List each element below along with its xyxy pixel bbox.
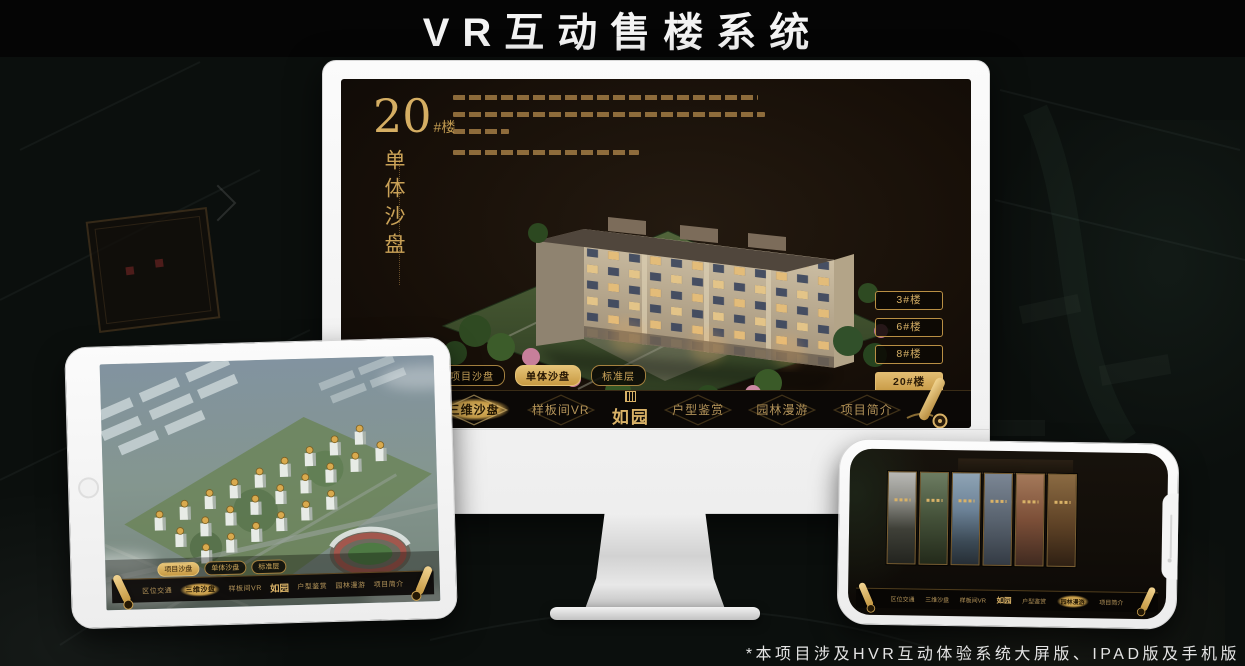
scene-card-label [1022, 500, 1038, 503]
phone-nav-garden-tour[interactable]: 园林漫游 [1057, 595, 1089, 609]
phone-brand-name: 如园 [996, 595, 1011, 606]
phone-nav-3d-sandbox[interactable]: 三维沙盘 [925, 595, 949, 604]
phone-notch [1161, 493, 1178, 579]
tablet-subtab-project-sandbox[interactable]: 项目沙盘 [157, 562, 199, 577]
tablet-nav-garden-tour[interactable]: 园林漫游 [335, 580, 365, 591]
phone-nav-project-intro[interactable]: 项目简介 [1099, 597, 1123, 606]
building-button-6[interactable]: 6#楼 [875, 318, 943, 337]
phone-nav-showroom-vr[interactable]: 样板间VR [960, 595, 986, 604]
nav-item-project-intro[interactable]: 项目简介 [831, 398, 903, 421]
tablet-nav-floorplans[interactable]: 户型鉴赏 [297, 581, 327, 592]
scene-card-label [958, 499, 974, 502]
phone-device: 区位交通 三维沙盘 样板间VR 如园 户型鉴赏 园林漫游 项目简介 [837, 438, 1180, 629]
page-title: VR互动售楼系统 [423, 0, 823, 58]
poster-stage: VR互动售楼系统 20#楼 单体沙盘 [0, 0, 1245, 666]
tablet-brand-name: 如园 [270, 580, 289, 595]
phone-nav-bar: 区位交通 三维沙盘 样板间VR 如园 户型鉴赏 园林漫游 项目简介 [856, 588, 1158, 613]
scene-card-label [926, 499, 942, 502]
phone-camera [1168, 559, 1172, 563]
heading-vertical-rule [399, 155, 400, 285]
tablet-home-button[interactable] [78, 477, 100, 499]
scene-card-tower[interactable] [983, 473, 1013, 566]
tablet-subtab-standard-floor[interactable]: 标准层 [251, 559, 286, 574]
scene-card-autumn[interactable] [1014, 473, 1044, 566]
brand-seal-icon [625, 391, 636, 402]
building-number: 20 [373, 89, 432, 143]
tablet-nav-3d-sandbox[interactable]: 三维沙盘 [180, 582, 220, 597]
description-line [453, 95, 758, 100]
tablet-screen: 项目沙盘 单体沙盘 标准层 区位交通 三维沙盘 样板间VR 如园 户型鉴赏 园林… [100, 355, 441, 610]
description-line [453, 129, 509, 134]
heading-vertical-label: 单体沙盘 [379, 149, 409, 261]
subtab-standard-floor[interactable]: 标准层 [591, 365, 646, 386]
title-band: VR互动售楼系统 [0, 0, 1245, 57]
brand-logo: 如园 [612, 391, 650, 428]
scene-card-label [990, 500, 1006, 503]
scene-card-garden[interactable] [919, 472, 949, 565]
nav-item-floorplans[interactable]: 户型鉴赏 [662, 398, 734, 421]
tablet-device: 项目沙盘 单体沙盘 标准层 区位交通 三维沙盘 样板间VR 如园 户型鉴赏 园林… [64, 337, 458, 630]
phone-scene-cards [887, 471, 1077, 567]
subtab-single-sandbox[interactable]: 单体沙盘 [515, 365, 581, 386]
scene-card-building-sky[interactable] [951, 472, 981, 565]
tablet-nav-project-intro[interactable]: 项目简介 [374, 579, 404, 590]
tablet-nav-location[interactable]: 区位交通 [142, 585, 172, 596]
monitor-stand-neck [585, 513, 725, 609]
phone-nav-floorplans[interactable]: 户型鉴赏 [1022, 596, 1046, 605]
monitor-subtabs: 项目沙盘 单体沙盘 标准层 [439, 365, 646, 386]
scene-card-ink-courtyard[interactable] [887, 471, 917, 564]
scene-card-interior[interactable] [1046, 474, 1076, 567]
building-button-8[interactable]: 8#楼 [875, 345, 943, 364]
background-trees-right [985, 120, 1245, 480]
footnote-text: *本项目涉及HVR互动体验系统大屏版、IPAD版及手机版 [746, 640, 1240, 664]
nav-item-garden-tour[interactable]: 园林漫游 [746, 398, 818, 421]
tablet-subtab-single-sandbox[interactable]: 单体沙盘 [204, 560, 246, 575]
scene-card-label [1054, 501, 1070, 504]
phone-nav-location[interactable]: 区位交通 [890, 594, 914, 603]
tablet-nav-showroom-vr[interactable]: 样板间VR [228, 583, 262, 594]
scroll-brush-icon[interactable] [903, 376, 949, 428]
phone-speaker [1170, 515, 1173, 559]
building-button-3[interactable]: 3#楼 [875, 291, 943, 310]
background-plaque [86, 207, 221, 333]
nav-item-showroom-vr[interactable]: 样板间VR [522, 398, 600, 421]
brand-name: 如园 [612, 403, 650, 428]
description-line [453, 112, 765, 117]
scene-card-label [894, 498, 910, 501]
monitor-stand-base [550, 607, 760, 620]
phone-screen: 区位交通 三维沙盘 样板间VR 如园 户型鉴赏 园林漫游 项目简介 [848, 449, 1169, 620]
